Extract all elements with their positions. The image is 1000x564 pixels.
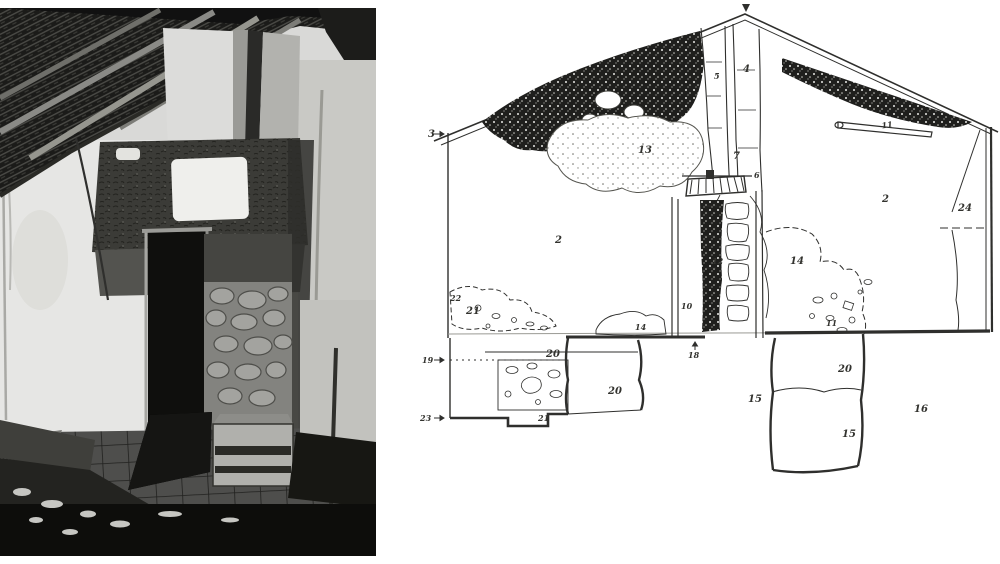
figure-page: 3 5 4 13 7 6 11 2 2 24 12 14 22 21 10 14…	[0, 0, 1000, 564]
rubble-patches	[450, 227, 872, 335]
label-3: 3	[428, 129, 435, 140]
label-19: 19	[422, 355, 434, 365]
drawing-canvas: 3 5 4 13 7 6 11 2 2 24 12 14 22 21 10 14…	[420, 0, 1000, 564]
label-13: 13	[638, 145, 652, 156]
plaster-patch-13	[547, 114, 704, 192]
label-2-left: 2	[554, 235, 562, 246]
wooden-crate	[213, 414, 293, 486]
interior-photograph	[0, 0, 380, 564]
label-12: 12	[712, 256, 724, 266]
doorway-drawing	[672, 170, 763, 338]
label-20-right: 20	[837, 364, 852, 375]
label-10: 10	[681, 301, 693, 311]
label-22: 22	[449, 293, 462, 303]
label-20-top: 20	[545, 349, 560, 360]
dark-doorway	[142, 229, 212, 432]
label-5: 5	[714, 71, 720, 81]
corner-unit-24	[940, 130, 986, 330]
label-2-right: 2	[881, 194, 889, 205]
label-20-mid: 20	[607, 386, 622, 397]
label-21-bottom: 21	[537, 413, 549, 423]
label-11-rubble: 11	[826, 318, 837, 328]
label-4: 4	[743, 64, 750, 75]
label-7: 7	[733, 151, 740, 162]
wall-section-drawing: 3 5 4 13 7 6 11 2 2 24 12 14 22 21 10 14…	[420, 0, 1000, 564]
label-11-beam: 11	[881, 119, 893, 130]
label-18: 18	[688, 350, 700, 360]
label-6: 6	[754, 170, 760, 180]
stone-pillar	[204, 234, 292, 434]
label-16: 16	[914, 404, 928, 415]
label-14-right: 14	[790, 256, 804, 267]
label-21-rubble: 21	[465, 306, 480, 317]
label-15-centre: 15	[748, 394, 762, 405]
label-14-left: 14	[635, 322, 647, 332]
right-wall-base	[288, 300, 376, 508]
label-15-right: 15	[842, 429, 856, 440]
label-23: 23	[420, 413, 432, 423]
photo-canvas	[0, 0, 380, 564]
label-24: 24	[957, 203, 972, 214]
